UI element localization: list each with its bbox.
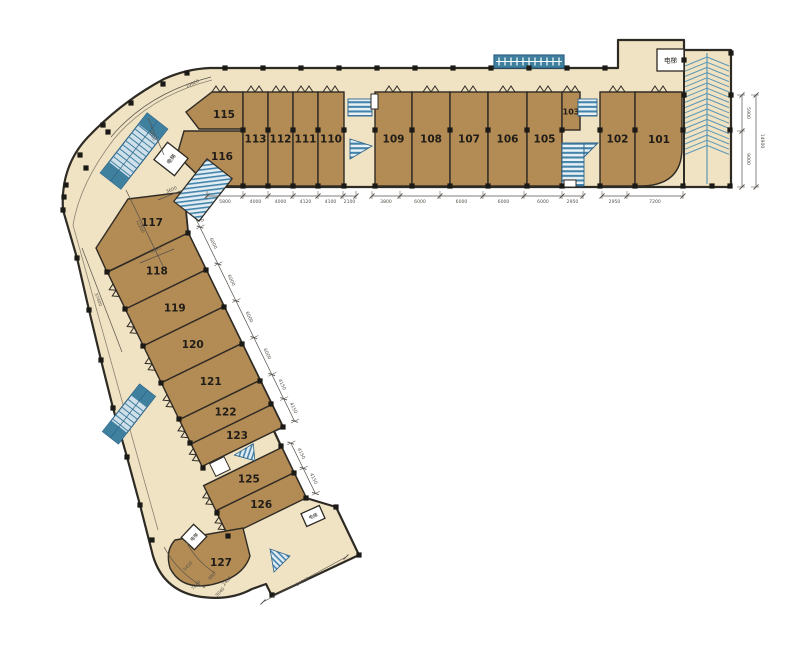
dim-tick: [251, 334, 258, 341]
room-123-label: 123: [226, 430, 248, 442]
room-109-label: 109: [383, 134, 405, 146]
column-icon: [680, 183, 685, 188]
dim-label: 2950: [609, 199, 621, 205]
column-icon: [303, 495, 308, 500]
column-icon: [60, 207, 65, 212]
column-icon: [239, 341, 244, 346]
column-icon: [315, 183, 320, 188]
column-icon: [485, 127, 490, 132]
room-121-label: 121: [200, 376, 222, 388]
dim-chain: 29507200: [600, 191, 686, 205]
dim-label: 2100: [344, 199, 356, 205]
dim-tick: [233, 297, 240, 304]
column-icon: [727, 127, 732, 132]
column-icon: [140, 343, 145, 348]
dim-tick: [300, 465, 307, 472]
dim-tick: [287, 440, 294, 447]
dim-label: 4150: [308, 472, 319, 485]
column-icon: [104, 269, 109, 274]
column-icon: [290, 127, 295, 132]
dim-tick: [268, 371, 275, 378]
room-107-label: 107: [458, 134, 480, 146]
column-icon: [564, 65, 569, 70]
column-icon: [372, 183, 377, 188]
column-icon: [488, 65, 493, 70]
dim-label: 6000: [498, 199, 510, 205]
dim-label: 6000: [262, 348, 273, 361]
dim-chain: 14900: [751, 93, 765, 190]
dim-label: 3800: [380, 199, 392, 205]
column-icon: [83, 165, 88, 170]
column-icon: [265, 127, 270, 132]
column-icon: [709, 183, 714, 188]
column-icon: [221, 304, 226, 309]
dim-tick: [215, 261, 222, 268]
dim-label: 4150: [296, 447, 307, 460]
column-icon: [61, 194, 66, 199]
dim-label: 6000: [244, 311, 255, 324]
column-icon: [372, 127, 377, 132]
column-icon: [298, 65, 303, 70]
column-icon: [632, 127, 637, 132]
column-icon: [158, 380, 163, 385]
column-icon: [222, 65, 227, 70]
dim-tick: [280, 395, 287, 402]
dim-tick: [312, 490, 319, 497]
column-icon: [137, 502, 142, 507]
room-118-label: 118: [146, 265, 168, 277]
column-icon: [265, 183, 270, 188]
column-icon: [100, 122, 105, 127]
dim-label: 4150: [277, 378, 288, 391]
stair-landing: [564, 180, 576, 187]
column-icon: [524, 127, 529, 132]
dim-label: 6000: [537, 199, 549, 205]
column-icon: [597, 127, 602, 132]
column-icon: [374, 65, 379, 70]
dim-label: 6000: [414, 199, 426, 205]
floor-plan-svg: 1151161131121111101091081071061051031021…: [0, 0, 800, 649]
dim-label: 6000: [226, 274, 237, 287]
column-icon: [203, 267, 208, 272]
column-icon: [185, 230, 190, 235]
dim-tick: [197, 224, 204, 231]
column-icon: [77, 152, 82, 157]
column-icon: [63, 182, 68, 187]
room-120-label: 120: [182, 339, 204, 351]
column-icon: [597, 183, 602, 188]
elevator-top-right-label: 电梯: [664, 55, 678, 64]
stair-icon: [578, 99, 597, 116]
column-icon: [524, 183, 529, 188]
room-105-label: 105: [534, 134, 556, 146]
column-icon: [315, 127, 320, 132]
room-102-label: 102: [607, 134, 629, 146]
column-icon: [257, 378, 262, 383]
dim-chain: 380060006000600060002950: [370, 191, 586, 205]
column-icon: [412, 65, 417, 70]
column-icon: [356, 552, 361, 557]
column-icon: [728, 50, 733, 55]
column-icon: [447, 183, 452, 188]
column-icon: [447, 127, 452, 132]
dim-label: 5800: [219, 199, 231, 205]
column-icon: [280, 424, 285, 429]
column-icon: [74, 255, 79, 260]
column-icon: [341, 183, 346, 188]
column-icon: [333, 504, 338, 509]
column-icon: [98, 357, 103, 362]
column-icon: [122, 306, 127, 311]
room-113-label: 113: [245, 134, 267, 146]
room-112-label: 112: [270, 134, 292, 146]
column-icon: [727, 183, 732, 188]
column-icon: [728, 92, 733, 97]
column-icon: [225, 533, 230, 538]
column-icon: [409, 127, 414, 132]
dim-chain: 580040004000412041002100: [205, 191, 359, 205]
dim-label: 7200: [649, 199, 661, 205]
dim-tick: [291, 418, 298, 425]
room-115-label: 115: [213, 109, 235, 121]
column-icon: [240, 127, 245, 132]
room-106-label: 106: [497, 134, 519, 146]
room-126-label: 126: [250, 499, 272, 511]
column-icon: [110, 405, 115, 410]
dim-chain: 59009000: [737, 93, 751, 190]
dim-label: 6000: [456, 199, 468, 205]
room-101-label: 101: [648, 134, 670, 146]
column-icon: [559, 183, 564, 188]
dim-label: 4150: [288, 401, 299, 414]
dim-label: 14900: [759, 134, 765, 149]
dim-label: 4000: [250, 199, 262, 205]
column-icon: [200, 465, 205, 470]
dim-label: 5900: [745, 107, 751, 119]
column-icon: [681, 92, 686, 97]
column-icon: [336, 65, 341, 70]
dim-label: 4100: [325, 199, 337, 205]
column-icon: [105, 129, 110, 134]
column-icon: [680, 127, 685, 132]
room-103-label: 103: [563, 108, 580, 117]
column-icon: [559, 127, 564, 132]
column-icon: [450, 65, 455, 70]
room-119-label: 119: [164, 302, 186, 314]
column-icon: [124, 454, 129, 459]
room-116-label: 116: [211, 151, 233, 163]
column-icon: [86, 307, 91, 312]
column-icon: [260, 65, 265, 70]
door-leaf: [371, 94, 378, 109]
column-icon: [341, 127, 346, 132]
column-icon: [291, 470, 296, 475]
room-108-label: 108: [420, 134, 442, 146]
column-icon: [184, 70, 189, 75]
dim-label: 4120: [300, 199, 312, 205]
dim-label: 2950: [567, 199, 579, 205]
stair-icon: [348, 99, 372, 116]
room-122-label: 122: [215, 407, 237, 419]
column-icon: [128, 100, 133, 105]
column-icon: [602, 65, 607, 70]
floor-plan-page: 1151161131121111101091081071061051031021…: [0, 0, 800, 649]
column-icon: [214, 510, 219, 515]
column-icon: [268, 401, 273, 406]
room-111-label: 111: [295, 134, 317, 146]
column-icon: [681, 57, 686, 62]
column-icon: [240, 183, 245, 188]
column-icon: [278, 443, 283, 448]
column-icon: [485, 183, 490, 188]
column-icon: [632, 183, 637, 188]
room-110-label: 110: [320, 134, 342, 146]
room-127-label: 127: [210, 557, 232, 569]
dim-tick: [261, 600, 266, 605]
dim-label: 6000: [208, 237, 219, 250]
column-icon: [149, 537, 154, 542]
dim-label: 4000: [275, 199, 287, 205]
dim-label: 9000: [745, 153, 751, 165]
column-icon: [409, 183, 414, 188]
column-icon: [176, 416, 181, 421]
column-icon: [290, 183, 295, 188]
column-icon: [187, 440, 192, 445]
column-icon: [160, 81, 165, 86]
room-125-label: 125: [238, 474, 260, 486]
column-icon: [526, 65, 531, 70]
elevator-top-right: 电梯: [657, 49, 684, 71]
